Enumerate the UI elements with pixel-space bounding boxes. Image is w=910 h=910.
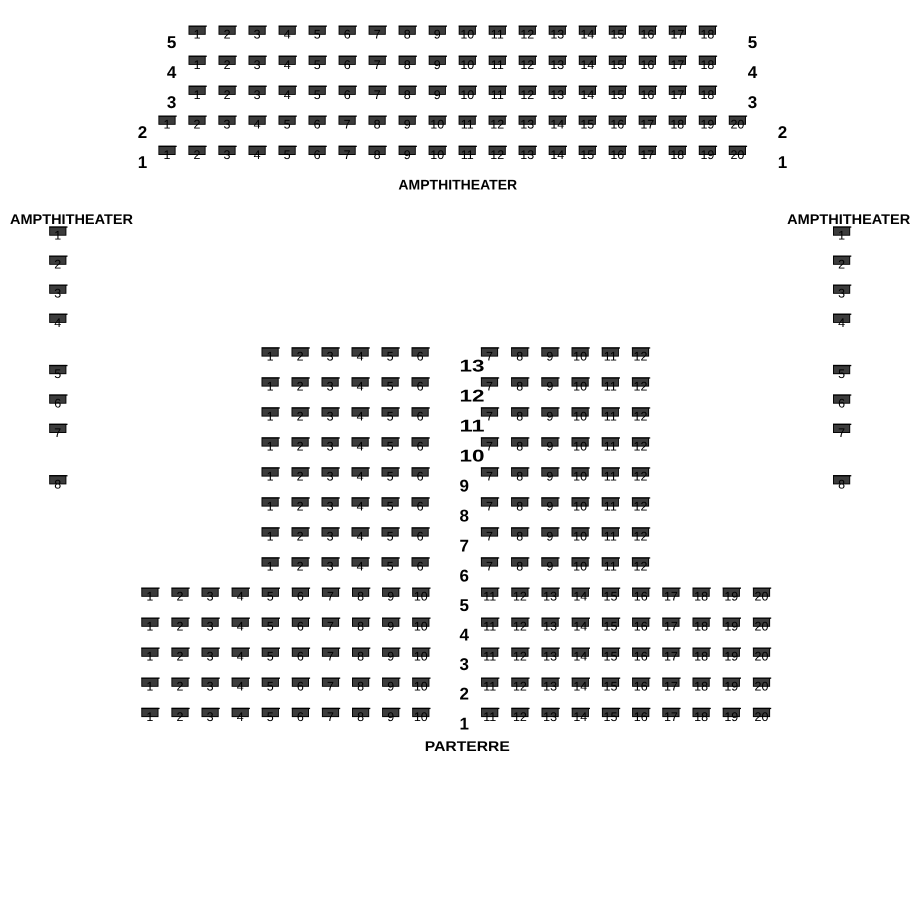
svg-text:8: 8 xyxy=(357,620,364,634)
svg-text:14: 14 xyxy=(550,148,564,162)
svg-text:5: 5 xyxy=(54,367,61,381)
svg-text:13: 13 xyxy=(543,590,557,604)
svg-text:7: 7 xyxy=(374,88,381,102)
svg-text:9: 9 xyxy=(546,530,553,544)
svg-text:5: 5 xyxy=(838,367,845,381)
svg-text:1: 1 xyxy=(267,500,274,514)
svg-text:2: 2 xyxy=(297,350,304,364)
svg-text:5: 5 xyxy=(387,440,394,454)
svg-text:16: 16 xyxy=(640,28,654,42)
svg-text:6: 6 xyxy=(344,28,351,42)
svg-text:2: 2 xyxy=(177,710,184,724)
svg-text:9: 9 xyxy=(387,590,394,604)
svg-text:11: 11 xyxy=(604,440,617,454)
svg-text:9: 9 xyxy=(460,476,469,495)
svg-text:20: 20 xyxy=(755,680,769,694)
svg-text:19: 19 xyxy=(724,620,738,634)
svg-text:8: 8 xyxy=(516,530,523,544)
svg-text:1: 1 xyxy=(194,88,201,102)
svg-text:19: 19 xyxy=(700,118,714,132)
svg-text:5: 5 xyxy=(267,680,274,694)
svg-text:9: 9 xyxy=(434,28,441,42)
svg-text:3: 3 xyxy=(207,590,214,604)
svg-text:4: 4 xyxy=(237,590,244,604)
svg-text:9: 9 xyxy=(546,500,553,514)
svg-text:3: 3 xyxy=(327,470,334,484)
svg-text:17: 17 xyxy=(670,28,684,42)
svg-text:13: 13 xyxy=(550,58,564,72)
svg-text:7: 7 xyxy=(486,560,493,574)
svg-text:PARTERRE: PARTERRE xyxy=(425,738,510,754)
svg-text:11: 11 xyxy=(604,380,617,394)
svg-text:19: 19 xyxy=(724,710,738,724)
svg-text:15: 15 xyxy=(610,58,624,72)
svg-text:8: 8 xyxy=(516,560,523,574)
svg-text:2: 2 xyxy=(297,530,304,544)
svg-text:9: 9 xyxy=(546,380,553,394)
svg-text:16: 16 xyxy=(610,148,624,162)
svg-text:3: 3 xyxy=(167,93,176,112)
svg-text:12: 12 xyxy=(634,440,648,454)
svg-text:1: 1 xyxy=(267,350,274,364)
svg-text:3: 3 xyxy=(327,560,334,574)
svg-text:3: 3 xyxy=(327,380,334,394)
svg-text:6: 6 xyxy=(838,397,845,411)
svg-text:2: 2 xyxy=(177,590,184,604)
svg-text:4: 4 xyxy=(254,148,261,162)
svg-text:6: 6 xyxy=(417,440,424,454)
svg-text:2: 2 xyxy=(177,650,184,664)
svg-text:14: 14 xyxy=(573,590,587,604)
svg-text:7: 7 xyxy=(54,426,61,440)
svg-text:17: 17 xyxy=(664,710,678,724)
svg-text:7: 7 xyxy=(486,380,493,394)
svg-text:9: 9 xyxy=(387,620,394,634)
svg-text:9: 9 xyxy=(546,410,553,424)
svg-text:6: 6 xyxy=(417,500,424,514)
svg-text:13: 13 xyxy=(550,88,564,102)
svg-text:4: 4 xyxy=(357,380,364,394)
svg-text:4: 4 xyxy=(167,63,177,82)
svg-text:1: 1 xyxy=(146,710,153,724)
svg-text:9: 9 xyxy=(546,350,553,364)
svg-text:12: 12 xyxy=(520,28,534,42)
svg-text:16: 16 xyxy=(634,680,648,694)
svg-text:3: 3 xyxy=(327,530,334,544)
svg-text:2: 2 xyxy=(138,123,147,142)
svg-text:7: 7 xyxy=(486,500,493,514)
svg-text:12: 12 xyxy=(634,350,648,364)
svg-text:10: 10 xyxy=(414,680,428,694)
svg-text:12: 12 xyxy=(520,88,534,102)
svg-text:3: 3 xyxy=(207,650,214,664)
svg-text:4: 4 xyxy=(838,316,845,330)
svg-text:1: 1 xyxy=(194,28,201,42)
svg-text:11: 11 xyxy=(491,88,504,102)
svg-text:10: 10 xyxy=(414,590,428,604)
svg-text:2: 2 xyxy=(194,148,201,162)
svg-text:13: 13 xyxy=(550,28,564,42)
svg-text:12: 12 xyxy=(513,680,527,694)
svg-text:12: 12 xyxy=(490,118,504,132)
svg-text:18: 18 xyxy=(694,590,708,604)
svg-text:3: 3 xyxy=(207,680,214,694)
svg-text:4: 4 xyxy=(357,560,364,574)
svg-text:11: 11 xyxy=(483,710,496,724)
svg-text:AMPTHITHEATER: AMPTHITHEATER xyxy=(10,211,133,227)
svg-text:12: 12 xyxy=(513,620,527,634)
svg-text:14: 14 xyxy=(580,88,594,102)
svg-text:5: 5 xyxy=(267,710,274,724)
svg-text:20: 20 xyxy=(755,650,769,664)
svg-text:7: 7 xyxy=(486,350,493,364)
svg-text:7: 7 xyxy=(374,28,381,42)
svg-text:5: 5 xyxy=(387,560,394,574)
svg-text:18: 18 xyxy=(694,680,708,694)
svg-text:9: 9 xyxy=(434,88,441,102)
svg-text:3: 3 xyxy=(224,118,231,132)
svg-text:6: 6 xyxy=(417,410,424,424)
svg-text:5: 5 xyxy=(267,620,274,634)
svg-text:17: 17 xyxy=(640,148,654,162)
svg-text:4: 4 xyxy=(254,118,261,132)
svg-text:2: 2 xyxy=(177,680,184,694)
svg-text:8: 8 xyxy=(404,88,411,102)
svg-text:8: 8 xyxy=(516,500,523,514)
svg-text:2: 2 xyxy=(297,440,304,454)
svg-text:4: 4 xyxy=(237,680,244,694)
svg-text:6: 6 xyxy=(417,470,424,484)
svg-text:6: 6 xyxy=(297,650,304,664)
svg-text:2: 2 xyxy=(778,123,787,142)
svg-text:6: 6 xyxy=(344,58,351,72)
svg-text:10: 10 xyxy=(460,28,474,42)
svg-text:3: 3 xyxy=(254,58,261,72)
svg-text:5: 5 xyxy=(460,596,469,615)
svg-text:4: 4 xyxy=(357,500,364,514)
svg-text:8: 8 xyxy=(460,506,469,525)
svg-text:11: 11 xyxy=(604,350,617,364)
svg-text:1: 1 xyxy=(267,470,274,484)
svg-text:8: 8 xyxy=(374,118,381,132)
svg-text:19: 19 xyxy=(700,148,714,162)
svg-text:5: 5 xyxy=(387,500,394,514)
svg-text:11: 11 xyxy=(483,620,496,634)
svg-text:18: 18 xyxy=(694,620,708,634)
svg-text:8: 8 xyxy=(357,710,364,724)
svg-text:1: 1 xyxy=(54,229,61,243)
svg-text:2: 2 xyxy=(224,88,231,102)
svg-text:6: 6 xyxy=(417,560,424,574)
svg-text:8: 8 xyxy=(838,477,845,491)
svg-text:13: 13 xyxy=(543,710,557,724)
svg-text:5: 5 xyxy=(387,380,394,394)
svg-text:7: 7 xyxy=(486,410,493,424)
svg-text:7: 7 xyxy=(486,470,493,484)
svg-text:11: 11 xyxy=(460,416,485,435)
svg-text:1: 1 xyxy=(164,148,171,162)
svg-text:16: 16 xyxy=(640,88,654,102)
svg-text:1: 1 xyxy=(267,530,274,544)
svg-text:15: 15 xyxy=(604,650,618,664)
svg-text:18: 18 xyxy=(700,58,714,72)
svg-text:6: 6 xyxy=(297,710,304,724)
svg-text:12: 12 xyxy=(513,650,527,664)
svg-text:5: 5 xyxy=(387,530,394,544)
svg-text:7: 7 xyxy=(327,620,334,634)
svg-text:17: 17 xyxy=(670,58,684,72)
svg-text:1: 1 xyxy=(267,410,274,424)
svg-text:8: 8 xyxy=(374,148,381,162)
svg-text:9: 9 xyxy=(546,470,553,484)
svg-text:18: 18 xyxy=(700,28,714,42)
svg-text:7: 7 xyxy=(486,530,493,544)
svg-text:7: 7 xyxy=(374,58,381,72)
svg-text:6: 6 xyxy=(417,350,424,364)
svg-text:16: 16 xyxy=(634,710,648,724)
svg-text:4: 4 xyxy=(357,440,364,454)
svg-text:3: 3 xyxy=(748,93,757,112)
svg-text:13: 13 xyxy=(460,356,485,375)
svg-text:6: 6 xyxy=(314,148,321,162)
svg-text:14: 14 xyxy=(573,650,587,664)
svg-text:4: 4 xyxy=(284,28,291,42)
svg-text:9: 9 xyxy=(546,440,553,454)
svg-text:13: 13 xyxy=(543,680,557,694)
svg-text:2: 2 xyxy=(297,380,304,394)
svg-text:16: 16 xyxy=(610,118,624,132)
svg-text:4: 4 xyxy=(357,410,364,424)
svg-text:9: 9 xyxy=(387,650,394,664)
svg-text:14: 14 xyxy=(573,680,587,694)
svg-text:11: 11 xyxy=(483,650,496,664)
svg-text:6: 6 xyxy=(417,530,424,544)
svg-text:15: 15 xyxy=(604,590,618,604)
svg-text:5: 5 xyxy=(284,118,291,132)
svg-text:5: 5 xyxy=(387,470,394,484)
svg-text:13: 13 xyxy=(520,118,534,132)
svg-text:13: 13 xyxy=(543,650,557,664)
svg-text:3: 3 xyxy=(327,500,334,514)
svg-text:2: 2 xyxy=(460,685,469,704)
svg-text:12: 12 xyxy=(520,58,534,72)
svg-text:5: 5 xyxy=(167,33,176,52)
svg-text:10: 10 xyxy=(460,58,474,72)
svg-text:4: 4 xyxy=(460,625,470,644)
svg-text:1: 1 xyxy=(146,620,153,634)
svg-text:6: 6 xyxy=(417,380,424,394)
svg-text:6: 6 xyxy=(297,590,304,604)
svg-text:3: 3 xyxy=(327,410,334,424)
svg-text:15: 15 xyxy=(604,680,618,694)
svg-text:11: 11 xyxy=(461,118,474,132)
svg-text:8: 8 xyxy=(516,440,523,454)
svg-text:8: 8 xyxy=(516,350,523,364)
svg-text:9: 9 xyxy=(387,680,394,694)
svg-text:8: 8 xyxy=(404,28,411,42)
svg-text:5: 5 xyxy=(314,88,321,102)
svg-text:2: 2 xyxy=(297,560,304,574)
svg-text:1: 1 xyxy=(194,58,201,72)
svg-text:18: 18 xyxy=(694,710,708,724)
svg-text:19: 19 xyxy=(724,650,738,664)
svg-text:2: 2 xyxy=(224,58,231,72)
svg-text:8: 8 xyxy=(357,590,364,604)
svg-text:17: 17 xyxy=(664,590,678,604)
svg-text:4: 4 xyxy=(54,316,61,330)
svg-text:11: 11 xyxy=(604,410,617,424)
svg-text:1: 1 xyxy=(460,714,469,733)
svg-text:4: 4 xyxy=(357,530,364,544)
svg-text:17: 17 xyxy=(664,620,678,634)
svg-text:16: 16 xyxy=(634,590,648,604)
svg-text:5: 5 xyxy=(267,590,274,604)
svg-text:2: 2 xyxy=(297,500,304,514)
svg-text:8: 8 xyxy=(357,680,364,694)
svg-text:19: 19 xyxy=(724,590,738,604)
svg-text:6: 6 xyxy=(460,566,469,585)
svg-text:15: 15 xyxy=(604,710,618,724)
svg-text:11: 11 xyxy=(491,28,504,42)
svg-text:9: 9 xyxy=(404,118,411,132)
svg-text:20: 20 xyxy=(755,710,769,724)
svg-text:12: 12 xyxy=(634,530,648,544)
svg-text:14: 14 xyxy=(573,710,587,724)
svg-text:6: 6 xyxy=(54,397,61,411)
svg-text:15: 15 xyxy=(610,88,624,102)
svg-text:19: 19 xyxy=(724,680,738,694)
svg-text:6: 6 xyxy=(314,118,321,132)
svg-text:7: 7 xyxy=(486,440,493,454)
svg-text:4: 4 xyxy=(237,650,244,664)
svg-text:3: 3 xyxy=(838,287,845,301)
svg-text:20: 20 xyxy=(730,148,744,162)
svg-text:18: 18 xyxy=(670,118,684,132)
svg-text:7: 7 xyxy=(327,710,334,724)
svg-text:11: 11 xyxy=(604,530,617,544)
svg-text:8: 8 xyxy=(54,477,61,491)
svg-text:10: 10 xyxy=(573,530,587,544)
svg-text:11: 11 xyxy=(604,500,617,514)
svg-text:7: 7 xyxy=(344,148,351,162)
svg-text:13: 13 xyxy=(520,148,534,162)
svg-text:6: 6 xyxy=(344,88,351,102)
svg-text:15: 15 xyxy=(580,118,594,132)
svg-text:1: 1 xyxy=(138,153,147,172)
svg-text:17: 17 xyxy=(664,650,678,664)
svg-text:9: 9 xyxy=(546,560,553,574)
svg-text:12: 12 xyxy=(634,560,648,574)
svg-text:1: 1 xyxy=(778,153,787,172)
svg-text:18: 18 xyxy=(670,148,684,162)
svg-text:6: 6 xyxy=(297,620,304,634)
svg-text:4: 4 xyxy=(357,470,364,484)
svg-text:3: 3 xyxy=(224,148,231,162)
svg-text:5: 5 xyxy=(314,28,321,42)
svg-text:8: 8 xyxy=(516,380,523,394)
svg-text:5: 5 xyxy=(314,58,321,72)
svg-text:5: 5 xyxy=(387,410,394,424)
svg-text:18: 18 xyxy=(694,650,708,664)
svg-text:15: 15 xyxy=(580,148,594,162)
svg-text:17: 17 xyxy=(670,88,684,102)
svg-text:2: 2 xyxy=(838,258,845,272)
svg-text:14: 14 xyxy=(550,118,564,132)
svg-text:7: 7 xyxy=(838,426,845,440)
svg-text:7: 7 xyxy=(327,650,334,664)
svg-text:12: 12 xyxy=(634,410,648,424)
svg-text:8: 8 xyxy=(516,470,523,484)
svg-text:3: 3 xyxy=(207,620,214,634)
svg-text:3: 3 xyxy=(207,710,214,724)
svg-text:10: 10 xyxy=(460,446,485,465)
svg-text:10: 10 xyxy=(430,118,444,132)
svg-text:17: 17 xyxy=(640,118,654,132)
svg-text:3: 3 xyxy=(254,28,261,42)
svg-text:15: 15 xyxy=(610,28,624,42)
svg-text:11: 11 xyxy=(461,148,474,162)
svg-text:10: 10 xyxy=(573,560,587,574)
svg-text:7: 7 xyxy=(327,590,334,604)
svg-text:AMPTHITHEATER: AMPTHITHEATER xyxy=(787,211,910,227)
svg-text:11: 11 xyxy=(491,58,504,72)
svg-text:10: 10 xyxy=(573,470,587,484)
svg-text:3: 3 xyxy=(54,287,61,301)
svg-text:17: 17 xyxy=(664,680,678,694)
svg-text:1: 1 xyxy=(838,229,845,243)
svg-text:1: 1 xyxy=(267,380,274,394)
svg-text:16: 16 xyxy=(640,58,654,72)
svg-text:12: 12 xyxy=(513,710,527,724)
svg-text:16: 16 xyxy=(634,650,648,664)
svg-text:12: 12 xyxy=(513,590,527,604)
svg-text:1: 1 xyxy=(146,590,153,604)
svg-text:3: 3 xyxy=(327,350,334,364)
svg-text:20: 20 xyxy=(755,620,769,634)
svg-text:10: 10 xyxy=(414,620,428,634)
svg-text:1: 1 xyxy=(267,560,274,574)
svg-text:20: 20 xyxy=(730,118,744,132)
svg-text:2: 2 xyxy=(194,118,201,132)
svg-text:10: 10 xyxy=(573,500,587,514)
svg-text:5: 5 xyxy=(267,650,274,664)
svg-text:1: 1 xyxy=(146,650,153,664)
svg-text:10: 10 xyxy=(430,148,444,162)
svg-text:10: 10 xyxy=(414,650,428,664)
svg-text:10: 10 xyxy=(414,710,428,724)
svg-text:7: 7 xyxy=(460,536,469,555)
svg-text:3: 3 xyxy=(254,88,261,102)
svg-text:7: 7 xyxy=(327,680,334,694)
svg-text:4: 4 xyxy=(284,58,291,72)
svg-text:2: 2 xyxy=(297,410,304,424)
svg-text:10: 10 xyxy=(573,350,587,364)
svg-text:6: 6 xyxy=(297,680,304,694)
svg-text:3: 3 xyxy=(327,440,334,454)
svg-text:15: 15 xyxy=(604,620,618,634)
svg-text:12: 12 xyxy=(460,386,485,405)
svg-text:7: 7 xyxy=(344,118,351,132)
svg-text:12: 12 xyxy=(634,500,648,514)
svg-text:3: 3 xyxy=(460,655,469,674)
svg-text:2: 2 xyxy=(224,28,231,42)
svg-text:5: 5 xyxy=(748,33,757,52)
svg-text:10: 10 xyxy=(573,410,587,424)
svg-text:11: 11 xyxy=(483,680,496,694)
svg-text:4: 4 xyxy=(237,710,244,724)
svg-text:4: 4 xyxy=(237,620,244,634)
svg-text:12: 12 xyxy=(634,470,648,484)
